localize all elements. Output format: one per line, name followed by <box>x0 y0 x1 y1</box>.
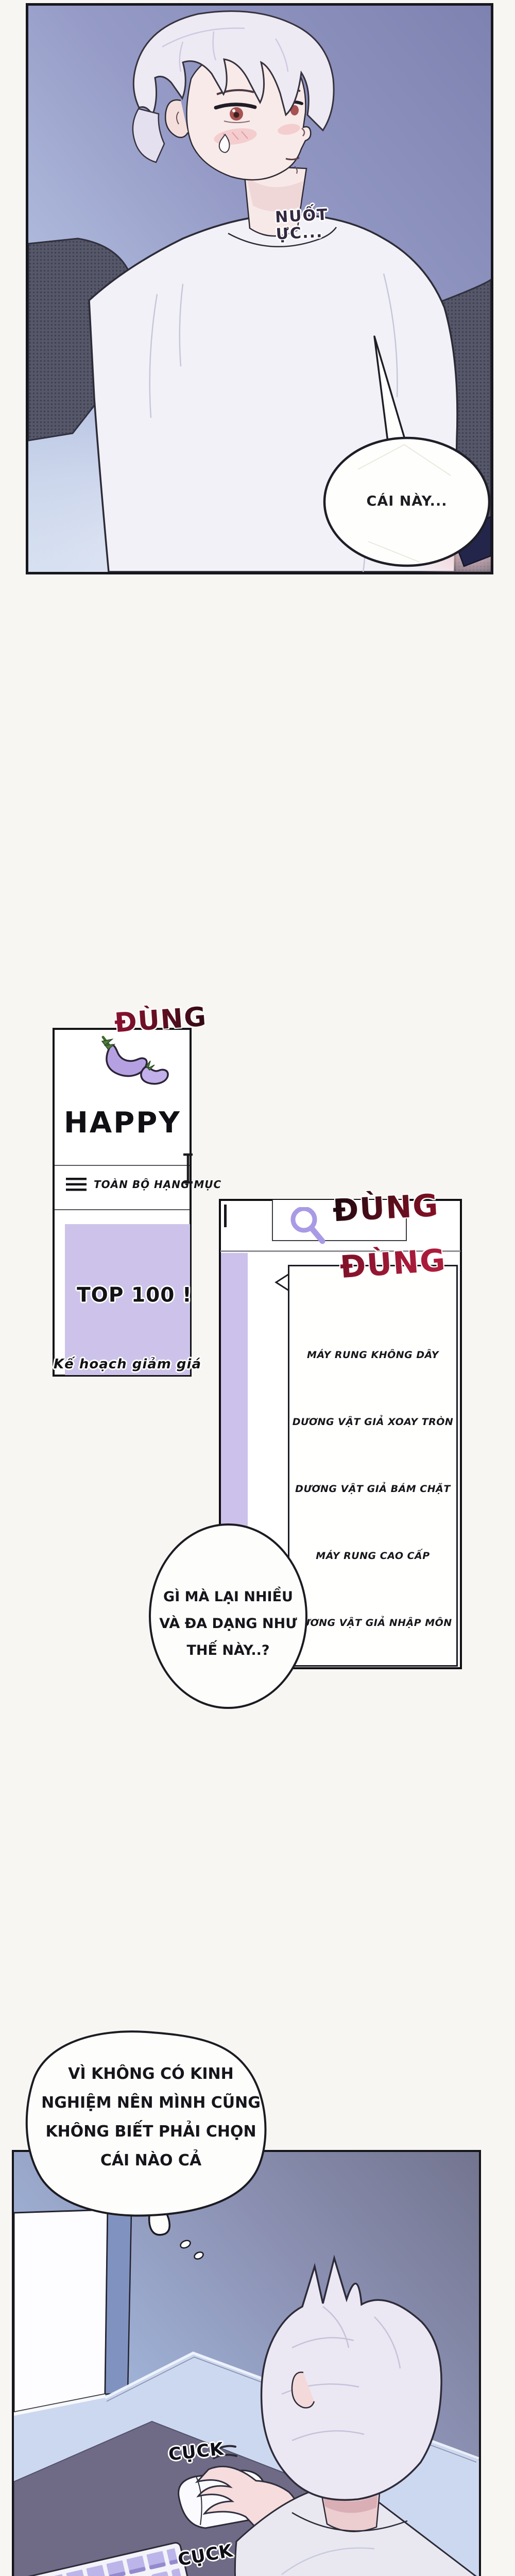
suggestion-item[interactable]: DƯƠNG VẬT GIẢ XOAY TRÒN <box>289 1416 456 1428</box>
suggestion-list: MÁY RUNG KHÔNG DÂY DƯƠNG VẬT GIẢ XOAY TR… <box>288 1265 458 1667</box>
store-panel: HAPPY TOÀN BỘ HẠNG MỤC TOP 100 ! Kế hoạc… <box>53 1028 192 1377</box>
suggestion-item[interactable]: MÁY RUNG KHÔNG DÂY <box>289 1349 456 1361</box>
search-sfx-dung-1: ĐÙNG <box>332 1188 440 1229</box>
top-panel: NUỐT ỰC... CÁI NÀY... <box>26 3 493 574</box>
thought-large-line3: KHÔNG BIẾT PHẢI CHỌN <box>38 2117 264 2146</box>
thought-droplet <box>179 2239 192 2249</box>
character-artwork <box>28 6 491 572</box>
speech-bubble-text: CÁI NÀY... <box>367 494 448 510</box>
thought-small-line2: VÀ ĐA DẠNG NHƯ <box>151 1611 305 1637</box>
thought-large-line1: VÌ KHÔNG CÓ KINH <box>38 2060 264 2089</box>
sidebar-accent-bar <box>221 1253 248 1539</box>
thought-droplet <box>193 2251 204 2260</box>
thought-large-line2: NGHIỆM NÊN MÌNH CŨNG <box>38 2089 264 2117</box>
search-sfx-dung-2: ĐÙNG <box>339 1242 448 1285</box>
sfx-gulp: NUỐT ỰC... <box>274 206 330 243</box>
thought-small-line1: GÌ MÀ LẠI NHIỀU <box>151 1584 305 1611</box>
store-divider-2 <box>55 1209 190 1210</box>
category-menu[interactable]: TOÀN BỘ HẠNG MỤC <box>66 1176 221 1193</box>
thought-bubble-small: GÌ MÀ LẠI NHIỀU VÀ ĐA DẠNG NHƯ THẾ NÀY..… <box>146 1520 311 1713</box>
magnifier-icon <box>289 1207 330 1246</box>
text-cursor <box>224 1205 227 1227</box>
thought-bubble-large: VÌ KHÔNG CÓ KINH NGHIỆM NÊN MÌNH CŨNG KH… <box>20 2026 277 2270</box>
sfx-gulp-line2: ỰC... <box>276 223 330 243</box>
hamburger-icon <box>66 1178 87 1191</box>
promo-banner[interactable]: TOP 100 ! Kế hoạch giảm giá <box>65 1224 190 1375</box>
store-brand: HAPPY <box>64 1106 181 1140</box>
ibeam-cursor-icon <box>182 1153 194 1184</box>
promo-title: TOP 100 ! <box>77 1284 192 1307</box>
category-menu-label: TOÀN BỘ HẠNG MỤC <box>94 1178 221 1191</box>
suggestion-item[interactable]: DƯƠNG VẬT GIẢ NHẬP MÔN <box>289 1617 456 1629</box>
store-sfx-dung: ĐÙNG <box>113 1002 208 1039</box>
thought-small-line3: THẾ NÀY..? <box>151 1637 305 1664</box>
comic-page: NUỐT ỰC... CÁI NÀY... HAPPY TOÀN BỘ HẠNG… <box>0 0 515 2576</box>
suggestion-item[interactable]: MÁY RUNG CAO CẤP <box>289 1550 456 1562</box>
suggestion-item[interactable]: DƯƠNG VẬT GIẢ BÁM CHẶT <box>289 1483 456 1495</box>
promo-subtitle: Kế hoạch giảm giá <box>54 1357 201 1372</box>
eggplant-pair-icon <box>95 1034 177 1090</box>
store-divider-1 <box>55 1165 190 1166</box>
thought-large-line4: CÁI NÀO CẢ <box>38 2146 264 2175</box>
